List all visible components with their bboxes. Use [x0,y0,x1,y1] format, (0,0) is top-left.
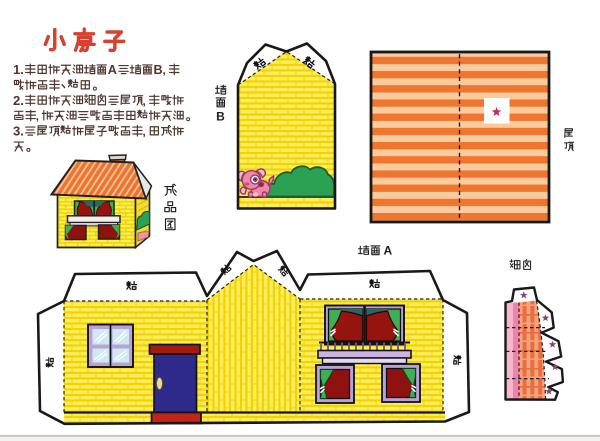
svg-text:3.: 3. [13,124,24,139]
svg-text:2.: 2. [13,93,24,108]
svg-text:,: , [163,64,166,77]
svg-text:B: B [216,110,225,124]
svg-text:B: B [154,63,163,77]
svg-text:,: , [143,95,146,108]
svg-text:1.: 1. [13,62,24,77]
svg-text:,: , [143,126,146,139]
svg-text:,: , [36,110,39,123]
svg-text:A: A [384,244,393,258]
svg-text:A: A [108,63,117,77]
